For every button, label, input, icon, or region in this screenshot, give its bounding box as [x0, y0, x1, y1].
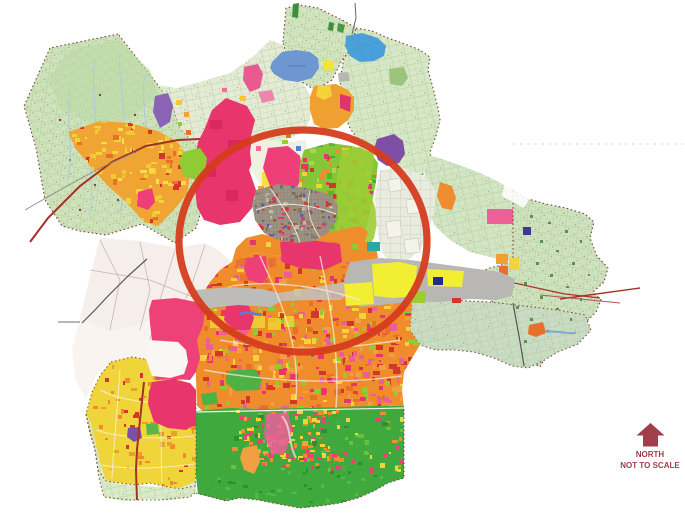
svg-text:NOT TO SCALE: NOT TO SCALE — [620, 461, 680, 470]
svg-text:NORTH: NORTH — [636, 450, 665, 459]
